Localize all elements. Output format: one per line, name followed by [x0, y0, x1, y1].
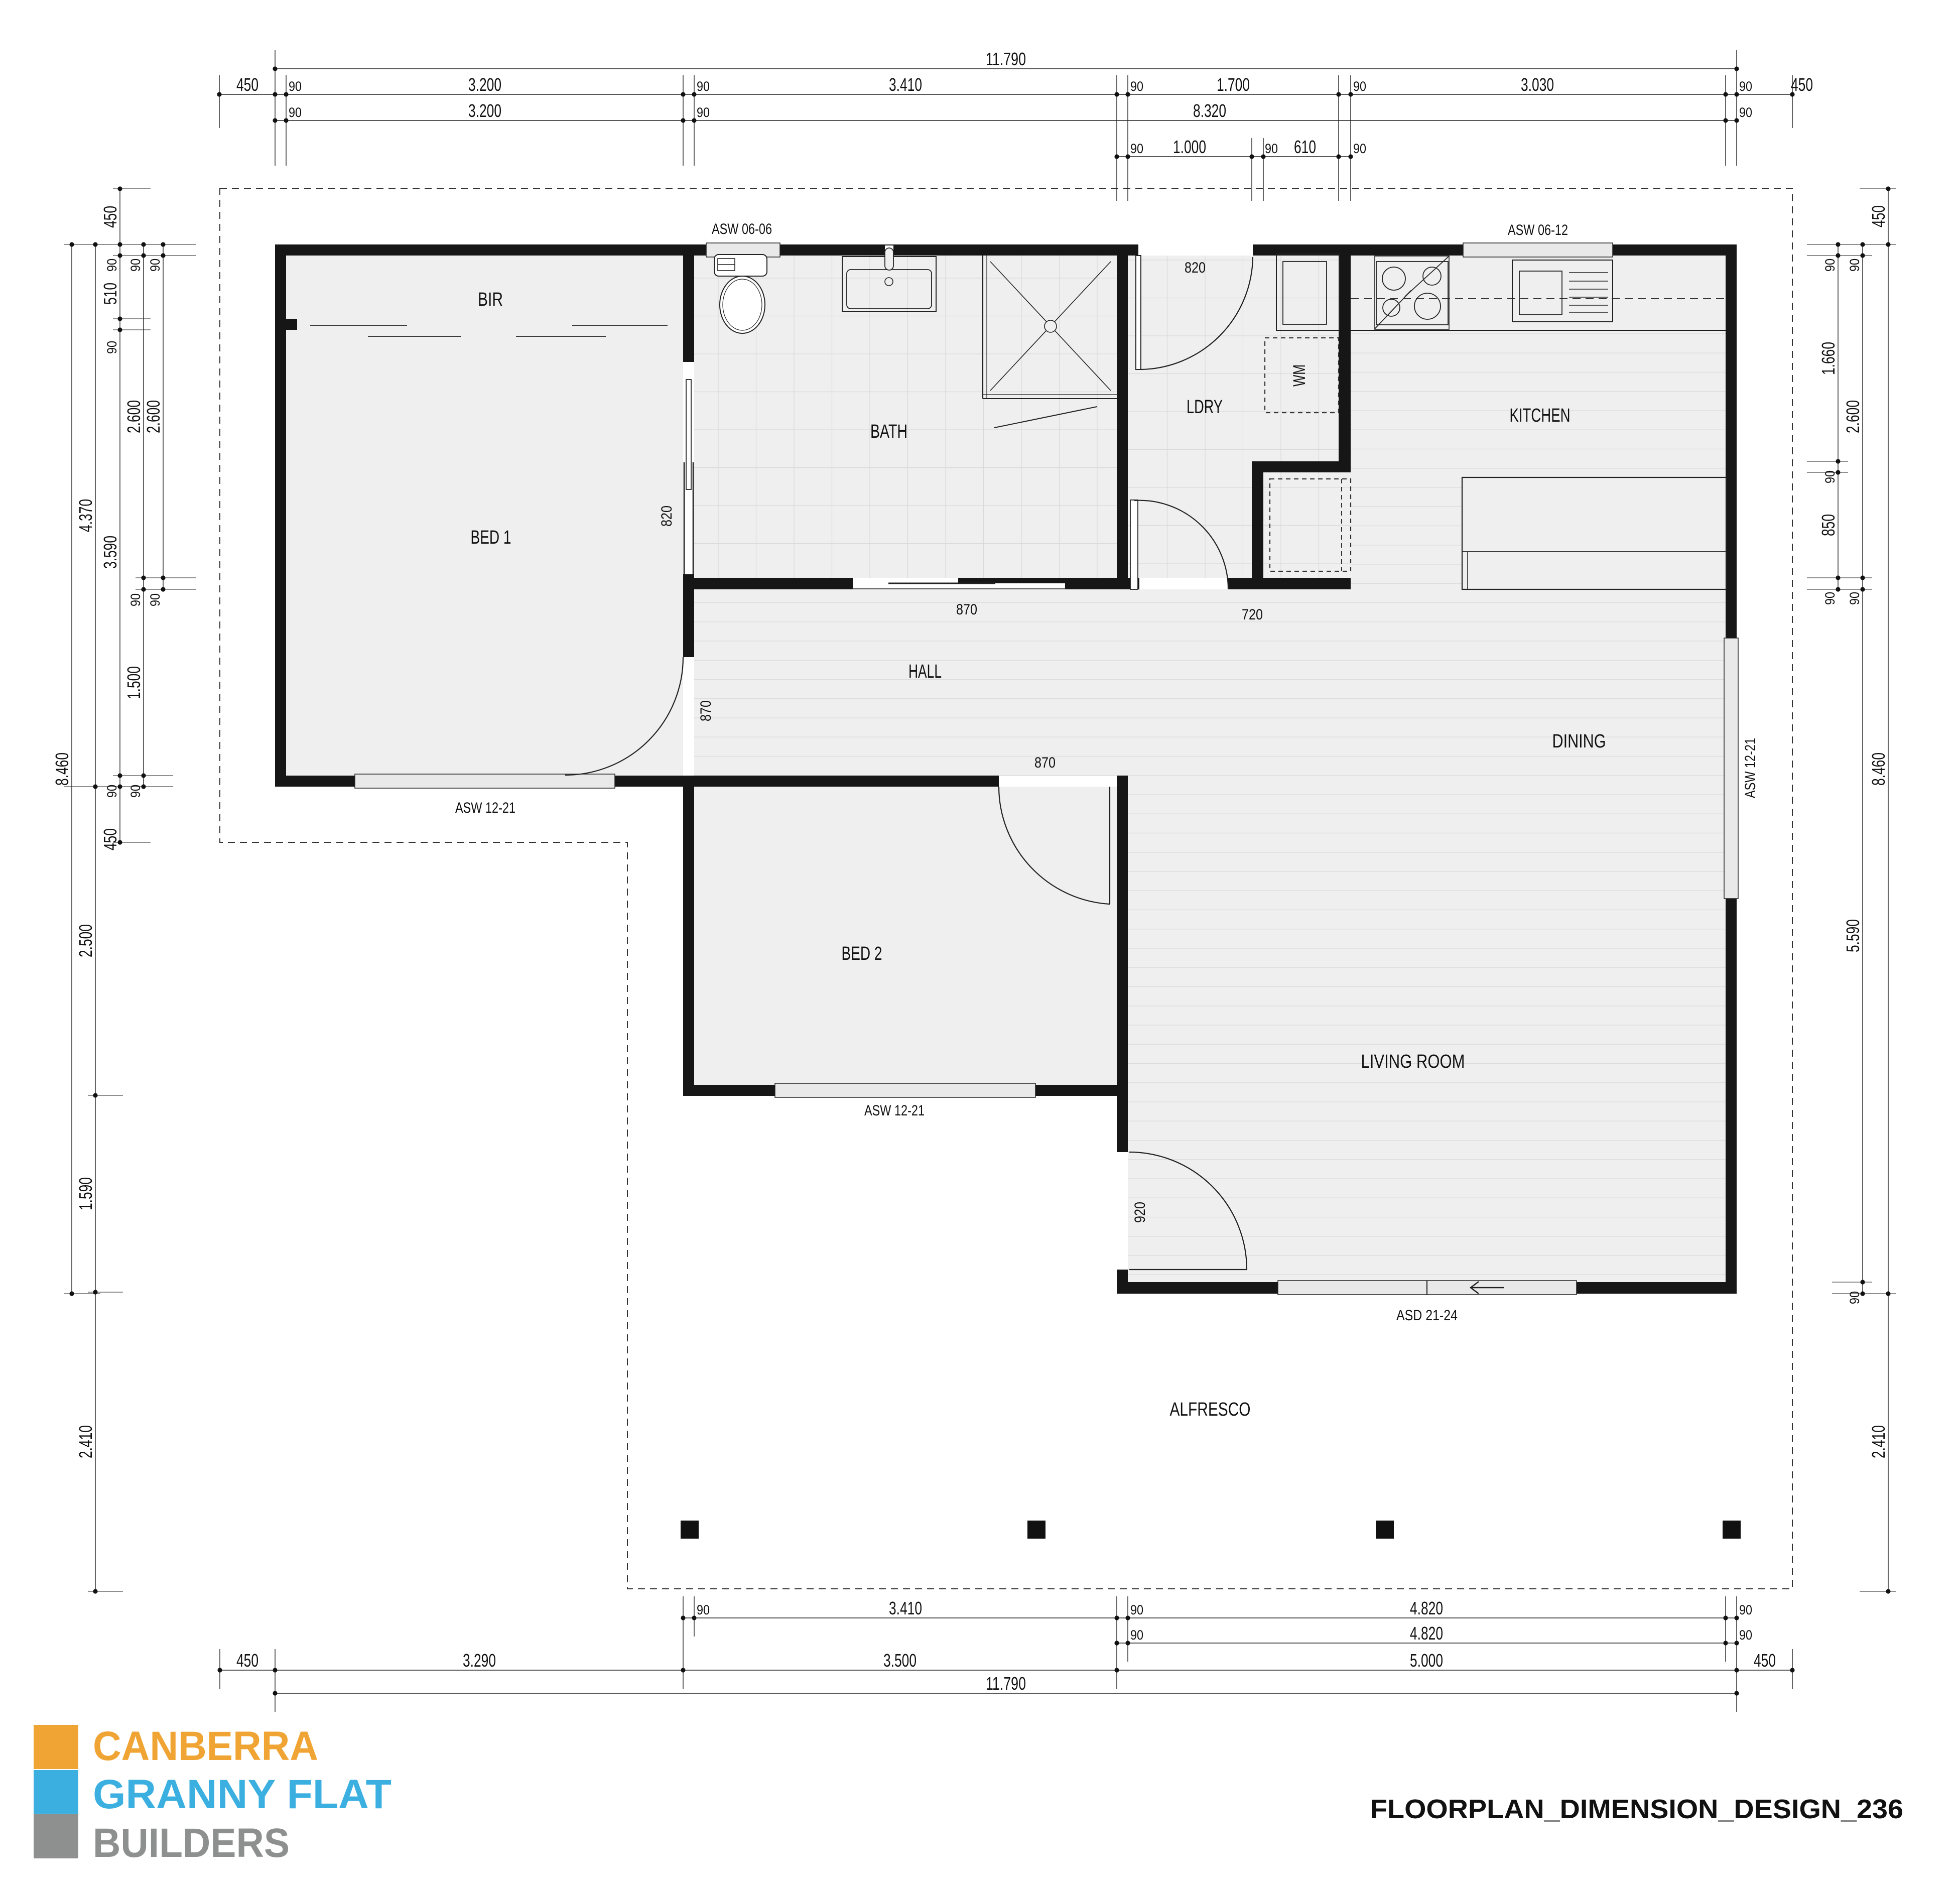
svg-text:90: 90	[148, 593, 163, 606]
svg-text:ASW 06-06: ASW 06-06	[712, 221, 772, 237]
svg-text:1.660: 1.660	[1818, 342, 1839, 375]
svg-text:4.820: 4.820	[1410, 1598, 1443, 1618]
svg-text:90: 90	[1353, 79, 1366, 94]
svg-text:90: 90	[1739, 1602, 1752, 1617]
svg-text:90: 90	[1353, 141, 1366, 156]
svg-text:BIR: BIR	[478, 289, 503, 310]
svg-text:90: 90	[1265, 141, 1278, 156]
svg-text:3.410: 3.410	[889, 1598, 922, 1618]
svg-text:2.410: 2.410	[75, 1425, 96, 1458]
svg-text:720: 720	[1242, 606, 1263, 623]
svg-text:DINING: DINING	[1552, 731, 1606, 752]
svg-text:4.370: 4.370	[75, 499, 96, 532]
svg-text:870: 870	[698, 700, 714, 721]
svg-text:90: 90	[1847, 259, 1862, 272]
svg-text:1.700: 1.700	[1217, 74, 1250, 95]
svg-text:90: 90	[104, 259, 119, 272]
svg-text:3.030: 3.030	[1521, 74, 1554, 95]
svg-text:450: 450	[1868, 205, 1889, 227]
svg-text:90: 90	[128, 259, 143, 272]
svg-text:90: 90	[1130, 79, 1143, 94]
svg-text:8.460: 8.460	[52, 752, 72, 786]
svg-text:90: 90	[128, 593, 143, 606]
svg-text:90: 90	[697, 79, 710, 94]
svg-text:3.200: 3.200	[468, 100, 501, 121]
svg-text:3.200: 3.200	[468, 74, 501, 95]
svg-text:3.290: 3.290	[463, 1650, 496, 1671]
svg-text:90: 90	[1822, 259, 1838, 272]
svg-text:11.790: 11.790	[986, 49, 1026, 69]
svg-text:920: 920	[1132, 1202, 1148, 1223]
svg-text:2.600: 2.600	[143, 400, 164, 433]
svg-text:90: 90	[148, 259, 163, 272]
svg-text:450: 450	[100, 206, 120, 228]
svg-text:FLOORPLAN_DIMENSION_DESIGN_236: FLOORPLAN_DIMENSION_DESIGN_236	[1370, 1794, 1903, 1824]
svg-text:90: 90	[1822, 470, 1838, 483]
svg-text:90: 90	[289, 79, 302, 94]
svg-text:90: 90	[1739, 1627, 1752, 1643]
svg-text:LDRY: LDRY	[1187, 397, 1223, 418]
svg-text:90: 90	[1847, 1291, 1862, 1304]
svg-text:1.500: 1.500	[123, 666, 144, 699]
svg-text:ASW 12-21: ASW 12-21	[1742, 738, 1759, 798]
svg-text:2.500: 2.500	[75, 924, 96, 957]
svg-text:1.590: 1.590	[75, 1177, 96, 1210]
svg-text:90: 90	[1822, 592, 1838, 605]
svg-text:2.600: 2.600	[1843, 400, 1863, 433]
svg-text:510: 510	[100, 283, 120, 305]
svg-text:BED 1: BED 1	[471, 527, 511, 548]
svg-text:450: 450	[1791, 74, 1813, 95]
svg-text:90: 90	[1130, 141, 1143, 156]
svg-text:90: 90	[1847, 592, 1862, 605]
svg-text:610: 610	[1294, 137, 1316, 157]
svg-text:BED 2: BED 2	[842, 943, 882, 964]
svg-text:5.000: 5.000	[1410, 1650, 1443, 1671]
svg-text:90: 90	[289, 105, 302, 120]
svg-text:90: 90	[697, 105, 710, 120]
svg-text:450: 450	[1754, 1650, 1776, 1671]
svg-text:KITCHEN: KITCHEN	[1510, 405, 1571, 426]
svg-text:8.460: 8.460	[1868, 752, 1889, 786]
svg-text:ASW 12-21: ASW 12-21	[455, 800, 515, 816]
svg-text:ALFRESCO: ALFRESCO	[1170, 1399, 1251, 1420]
svg-text:90: 90	[1739, 79, 1752, 94]
svg-text:1.000: 1.000	[1173, 137, 1206, 157]
svg-text:HALL: HALL	[908, 661, 942, 682]
svg-text:2.410: 2.410	[1868, 1425, 1889, 1458]
svg-text:5.590: 5.590	[1843, 919, 1863, 952]
svg-text:90: 90	[128, 785, 143, 798]
svg-text:3.590: 3.590	[100, 536, 120, 569]
svg-text:90: 90	[1130, 1627, 1143, 1643]
svg-text:BUILDERS: BUILDERS	[93, 1820, 290, 1866]
svg-text:90: 90	[1130, 1602, 1143, 1617]
svg-text:870: 870	[956, 601, 977, 618]
svg-text:4.820: 4.820	[1410, 1623, 1443, 1644]
svg-text:450: 450	[100, 828, 120, 850]
svg-text:LIVING ROOM: LIVING ROOM	[1361, 1051, 1465, 1072]
svg-text:11.790: 11.790	[986, 1673, 1026, 1694]
svg-text:3.500: 3.500	[883, 1650, 917, 1671]
svg-text:BATH: BATH	[870, 421, 907, 442]
svg-text:CANBERRA: CANBERRA	[93, 1723, 318, 1769]
svg-text:ASW 06-12: ASW 06-12	[1508, 222, 1568, 238]
svg-text:3.410: 3.410	[889, 74, 922, 95]
svg-text:850: 850	[1818, 514, 1839, 536]
svg-text:90: 90	[104, 341, 119, 354]
svg-text:870: 870	[1034, 755, 1056, 771]
svg-text:8.320: 8.320	[1193, 100, 1226, 121]
svg-text:90: 90	[697, 1602, 710, 1617]
svg-text:ASD 21-24: ASD 21-24	[1396, 1307, 1458, 1324]
svg-text:820: 820	[659, 506, 675, 527]
svg-text:450: 450	[236, 1650, 258, 1671]
svg-text:90: 90	[1739, 105, 1752, 120]
svg-text:90: 90	[104, 785, 119, 798]
svg-text:ASW 12-21: ASW 12-21	[864, 1102, 925, 1119]
svg-text:450: 450	[236, 74, 258, 95]
svg-text:2.600: 2.600	[123, 400, 144, 433]
svg-text:820: 820	[1185, 260, 1206, 276]
svg-text:WM: WM	[1290, 364, 1309, 387]
svg-text:GRANNY FLAT: GRANNY FLAT	[93, 1772, 391, 1817]
